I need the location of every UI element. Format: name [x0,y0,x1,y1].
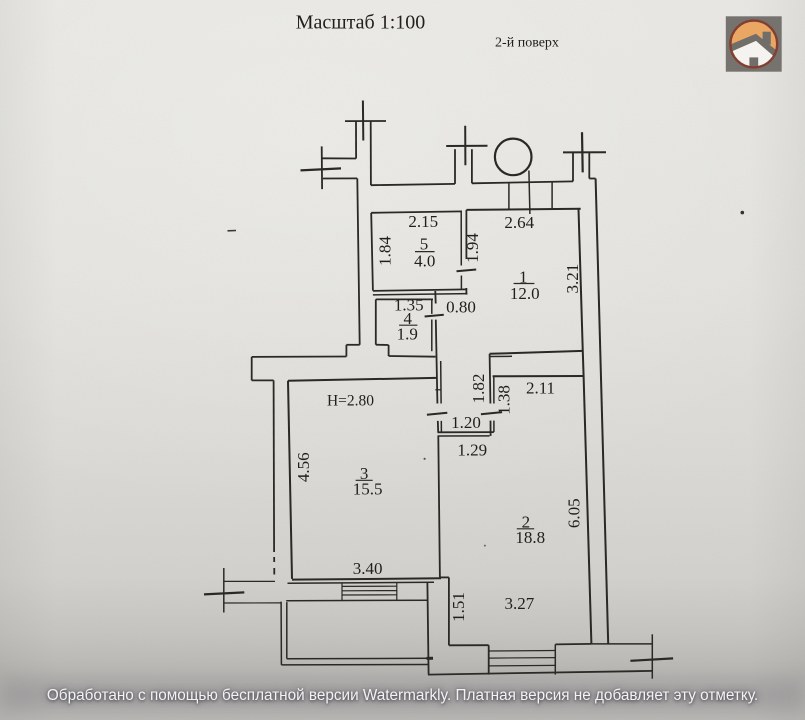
svg-text:2.15: 2.15 [408,212,438,231]
svg-text:1.38: 1.38 [495,385,514,415]
svg-text:0.80: 0.80 [446,297,476,316]
svg-text:2.11: 2.11 [526,379,555,398]
svg-text:1.20: 1.20 [451,413,481,432]
svg-text:3.21: 3.21 [563,264,582,294]
svg-text:4.56: 4.56 [294,452,313,482]
svg-text:1.9: 1.9 [397,325,418,344]
svg-text:2-й поверх: 2-й поверх [495,36,559,51]
svg-text:4.0: 4.0 [414,252,435,271]
svg-text:1.94: 1.94 [463,233,482,263]
svg-text:1.84: 1.84 [376,236,395,266]
svg-text:2.64: 2.64 [504,213,534,232]
svg-text:15.5: 15.5 [353,480,383,499]
svg-text:18.8: 18.8 [515,528,545,547]
svg-text:6.05: 6.05 [565,498,584,528]
svg-text:1.51: 1.51 [449,592,468,622]
svg-text:1.29: 1.29 [457,441,487,460]
svg-text:Масштаб 1:100: Масштаб 1:100 [296,12,426,34]
svg-text:3.40: 3.40 [353,559,383,578]
svg-text:5: 5 [420,234,429,253]
svg-text:12.0: 12.0 [510,284,540,303]
svg-text:3.27: 3.27 [505,594,535,613]
svg-text:H=2.80: H=2.80 [327,392,374,409]
svg-text:1.82: 1.82 [469,374,488,404]
